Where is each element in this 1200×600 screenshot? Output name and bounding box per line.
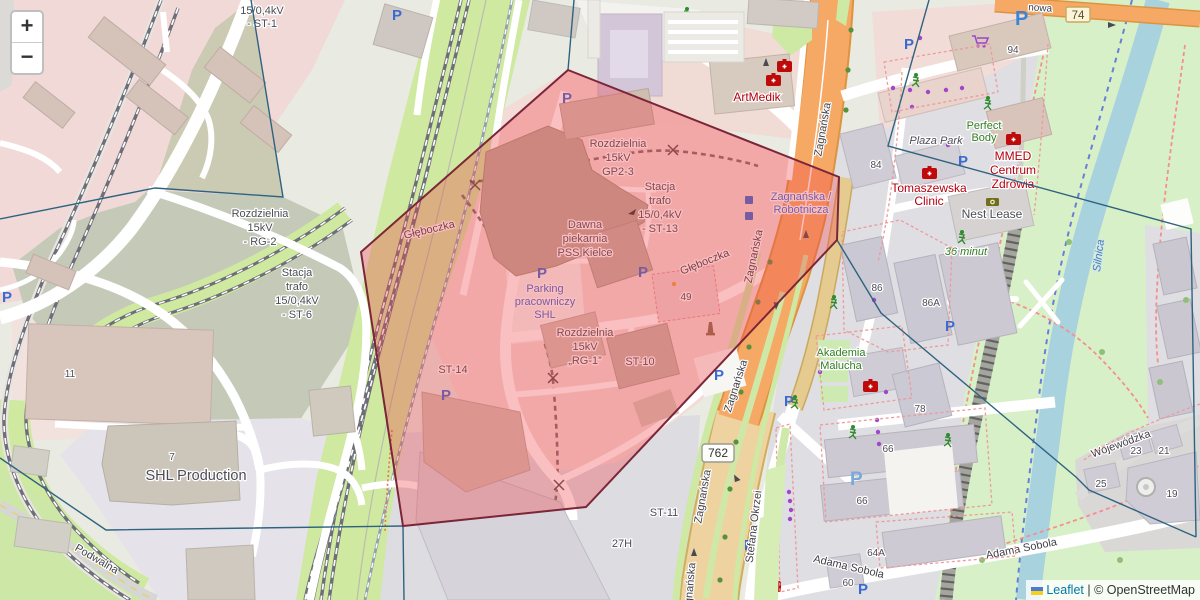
svg-text:Stacja: Stacja xyxy=(282,267,313,279)
svg-text:Clinic: Clinic xyxy=(914,194,943,208)
svg-text:86A: 86A xyxy=(922,298,940,309)
svg-text:P: P xyxy=(858,581,868,598)
svg-text:7: 7 xyxy=(169,452,175,463)
svg-text:78: 78 xyxy=(914,404,926,415)
svg-text:MMED: MMED xyxy=(995,149,1032,163)
svg-text:64A: 64A xyxy=(867,548,885,559)
svg-text:94: 94 xyxy=(1007,45,1019,56)
svg-text:ArtMedik: ArtMedik xyxy=(733,90,781,104)
svg-text:11: 11 xyxy=(65,369,76,380)
svg-text:Nest Lease: Nest Lease xyxy=(962,207,1023,221)
svg-text:- ST-6: - ST-6 xyxy=(282,309,312,321)
svg-text:Rozdzielnia: Rozdzielnia xyxy=(232,208,290,220)
svg-text:trafo: trafo xyxy=(286,281,308,293)
svg-text:74: 74 xyxy=(1072,10,1085,22)
svg-text:SHL Production: SHL Production xyxy=(145,468,246,484)
svg-text:15kV: 15kV xyxy=(247,222,273,234)
svg-text:60: 60 xyxy=(842,578,854,589)
svg-text:P: P xyxy=(2,289,12,306)
svg-text:Plaza Park: Plaza Park xyxy=(909,135,963,147)
svg-text:Centrum: Centrum xyxy=(990,163,1036,177)
svg-text:19: 19 xyxy=(1166,489,1178,500)
svg-text:P: P xyxy=(1015,8,1028,30)
svg-text:15/0,4kV: 15/0,4kV xyxy=(275,295,319,307)
svg-text:- ST-1: - ST-1 xyxy=(247,18,277,30)
svg-text:25: 25 xyxy=(1095,479,1107,490)
svg-text:762: 762 xyxy=(708,446,728,460)
svg-text:Akademia: Akademia xyxy=(817,347,867,359)
svg-text:66: 66 xyxy=(882,444,894,455)
svg-text:nowa: nowa xyxy=(1028,2,1053,14)
svg-text:P: P xyxy=(850,469,863,490)
svg-text:84: 84 xyxy=(870,160,882,171)
svg-text:P: P xyxy=(392,7,402,24)
svg-text:ST-11: ST-11 xyxy=(650,507,679,519)
svg-text:Body: Body xyxy=(971,132,997,144)
svg-text:21: 21 xyxy=(1158,446,1170,457)
svg-text:Tomaszewska: Tomaszewska xyxy=(891,181,967,195)
svg-text:Perfect: Perfect xyxy=(967,120,1002,132)
svg-text:23: 23 xyxy=(1130,446,1142,457)
svg-text:P: P xyxy=(945,318,955,335)
svg-text:- RG-2: - RG-2 xyxy=(244,236,277,248)
svg-text:66: 66 xyxy=(856,496,868,507)
svg-text:P: P xyxy=(904,36,914,53)
svg-text:27H: 27H xyxy=(612,538,632,550)
svg-text:Malucha: Malucha xyxy=(820,360,862,372)
svg-text:15/0,4kV: 15/0,4kV xyxy=(240,5,284,17)
svg-text:86: 86 xyxy=(871,283,883,294)
